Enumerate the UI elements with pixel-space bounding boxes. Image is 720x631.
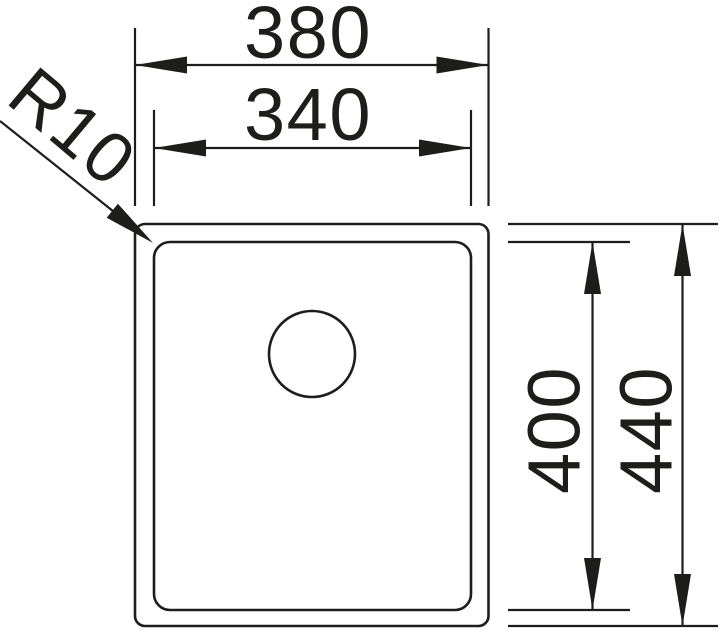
technical-drawing-page: 380 340 400 440 <box>0 0 720 631</box>
arrowhead-right-icon <box>419 140 471 157</box>
arrowhead-down-icon <box>584 558 601 610</box>
arrowhead-left-icon <box>135 57 187 74</box>
radius-callout: R10 <box>0 53 153 243</box>
radius-label: R10 <box>0 53 151 203</box>
arrowhead-up-icon <box>674 224 691 276</box>
arrowhead-up-icon <box>584 242 601 294</box>
arrowhead-right-icon <box>437 57 489 74</box>
dimension-inner-width: 340 <box>154 73 471 206</box>
sink-outline <box>135 224 489 626</box>
sink-bowl-edge <box>154 242 471 610</box>
dimension-label-outer-width: 380 <box>244 0 372 74</box>
drain-hole <box>269 311 355 397</box>
dimension-label-inner-height: 400 <box>513 366 596 494</box>
dimension-label-inner-width: 340 <box>244 73 372 156</box>
arrowhead-down-icon <box>674 574 691 626</box>
dimension-label-outer-height: 440 <box>605 366 688 494</box>
sink-outer-edge <box>135 224 489 626</box>
arrowhead-left-icon <box>154 140 206 157</box>
sink-dimension-diagram: 380 340 400 440 <box>0 0 720 631</box>
